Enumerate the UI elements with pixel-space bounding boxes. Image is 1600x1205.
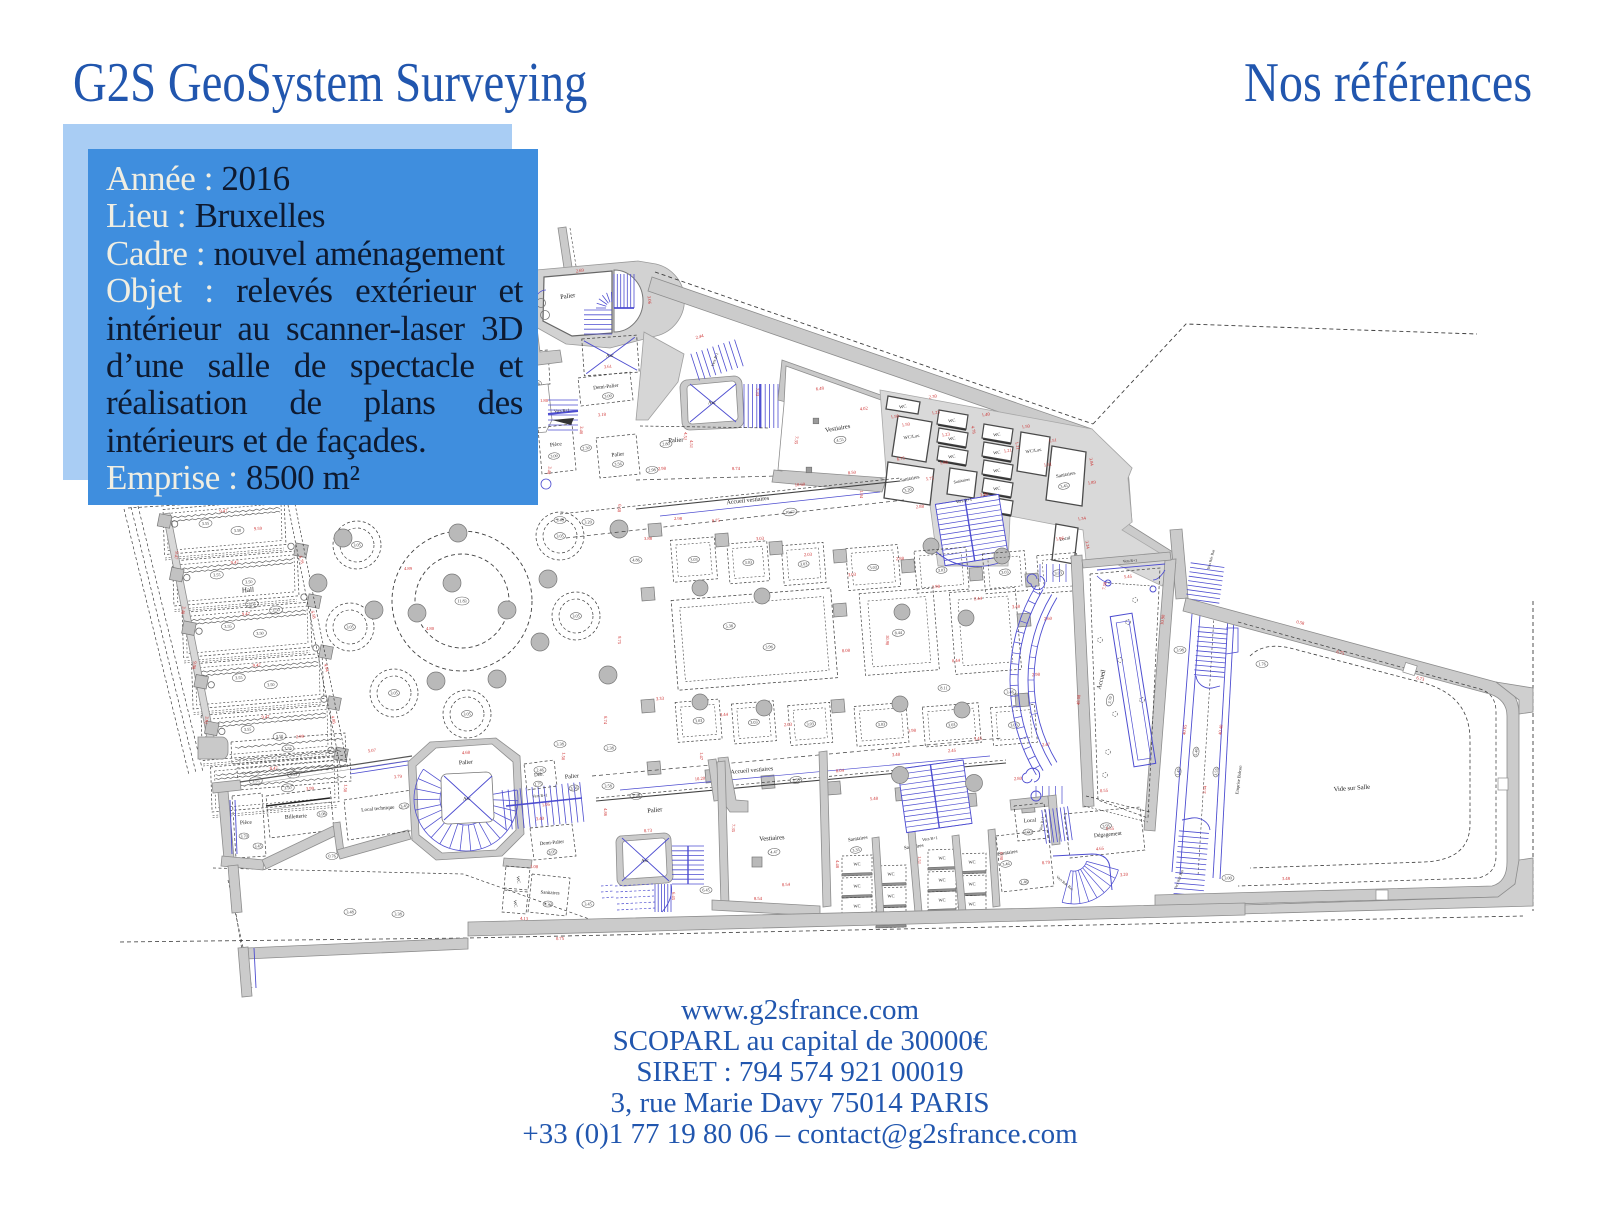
svg-text:6.78: 6.78 <box>298 555 305 565</box>
svg-text:Palier: Palier <box>565 773 579 780</box>
svg-text:1.94: 1.94 <box>859 490 864 499</box>
svg-text:3.03: 3.03 <box>948 722 956 728</box>
svg-text:3.03: 3.03 <box>1001 569 1009 575</box>
svg-text:2.03: 2.03 <box>804 552 813 558</box>
svg-text:1.50: 1.50 <box>343 784 349 793</box>
svg-text:2.99: 2.99 <box>296 734 305 739</box>
svg-text:Palier: Palier <box>611 451 625 458</box>
svg-text:3.35: 3.35 <box>852 847 860 853</box>
svg-text:3.45: 3.45 <box>584 901 591 906</box>
svg-text:0.75: 0.75 <box>556 936 565 941</box>
svg-text:3.03: 3.03 <box>695 718 703 724</box>
svg-text:7.33: 7.33 <box>755 388 760 397</box>
svg-text:2.45: 2.45 <box>948 748 957 754</box>
svg-text:Sanitaires: Sanitaires <box>848 836 868 844</box>
svg-text:2.30: 2.30 <box>582 445 590 451</box>
svg-text:3.48: 3.48 <box>1282 876 1291 881</box>
svg-text:5.07: 5.07 <box>368 748 377 754</box>
svg-text:3.55: 3.55 <box>244 726 252 731</box>
svg-text:2.80: 2.80 <box>1014 776 1023 782</box>
svg-text:3.38: 3.38 <box>632 793 639 798</box>
svg-text:3.44: 3.44 <box>720 712 729 718</box>
svg-text:3.38: 3.38 <box>394 911 401 916</box>
svg-text:WC: WC <box>968 859 975 864</box>
svg-text:3.03: 3.03 <box>744 559 752 565</box>
svg-text:0.44: 0.44 <box>952 658 961 664</box>
svg-text:9.47: 9.47 <box>261 714 270 720</box>
svg-text:3.55: 3.55 <box>202 521 210 526</box>
svg-text:3.46: 3.46 <box>1006 689 1013 694</box>
svg-text:3.40: 3.40 <box>579 426 585 435</box>
svg-text:3.88: 3.88 <box>644 536 653 541</box>
svg-text:3.48: 3.48 <box>346 909 353 914</box>
svg-text:3.55: 3.55 <box>235 675 243 680</box>
svg-text:8.79: 8.79 <box>1042 860 1051 866</box>
svg-text:Vers R+1: Vers R+1 <box>922 835 938 842</box>
svg-text:WC: WC <box>968 901 975 906</box>
svg-text:WC: WC <box>512 900 518 908</box>
svg-text:Local: Local <box>1024 818 1037 825</box>
svg-text:3.50: 3.50 <box>267 682 275 687</box>
svg-text:WC: WC <box>853 883 860 888</box>
svg-text:2.60: 2.60 <box>1044 616 1053 622</box>
svg-text:4.86: 4.86 <box>632 557 639 562</box>
svg-text:Emprise Balcon: Emprise Balcon <box>1234 764 1243 794</box>
svg-text:Accueil: Accueil <box>1096 669 1108 690</box>
svg-text:Demi-Palier: Demi-Palier <box>593 383 619 392</box>
svg-text:Dégagement: Dégagement <box>1094 831 1123 839</box>
svg-text:3.55: 3.55 <box>248 601 256 606</box>
svg-text:3.05: 3.05 <box>548 849 556 855</box>
svg-text:2.38: 2.38 <box>606 745 613 750</box>
svg-text:6.58: 6.58 <box>310 610 317 620</box>
svg-text:Palier: Palier <box>668 437 684 445</box>
svg-text:1.75: 1.75 <box>534 781 542 787</box>
svg-text:3.50: 3.50 <box>234 528 242 533</box>
svg-text:3.00: 3.00 <box>1224 875 1231 880</box>
svg-text:WC: WC <box>887 871 894 876</box>
svg-text:4.65: 4.65 <box>1096 846 1105 852</box>
svg-text:1.45: 1.45 <box>1175 768 1181 776</box>
svg-text:WC: WC <box>853 861 860 866</box>
svg-text:Pièce: Pièce <box>240 820 253 826</box>
svg-text:3.33: 3.33 <box>656 696 665 702</box>
svg-text:3.05: 3.05 <box>353 542 360 547</box>
svg-text:40.65: 40.65 <box>1181 724 1187 736</box>
svg-text:10.20: 10.20 <box>694 776 705 782</box>
svg-text:2.98: 2.98 <box>1032 672 1041 678</box>
svg-text:3.05: 3.05 <box>556 533 563 538</box>
svg-text:4.86: 4.86 <box>330 715 337 725</box>
svg-text:7.35: 7.35 <box>794 436 800 445</box>
svg-text:3.35: 3.35 <box>792 777 800 783</box>
svg-text:3.00: 3.00 <box>550 453 558 459</box>
svg-text:3.03: 3.03 <box>1054 570 1062 576</box>
svg-text:2.03: 2.03 <box>784 722 793 728</box>
svg-text:3.03: 3.03 <box>869 565 877 571</box>
svg-text:4.89: 4.89 <box>404 566 413 571</box>
svg-text:0.58: 0.58 <box>1296 619 1306 626</box>
svg-text:3.45: 3.45 <box>254 843 261 848</box>
svg-text:3.20: 3.20 <box>1120 872 1129 878</box>
svg-text:2.46: 2.46 <box>536 767 543 772</box>
svg-text:9.47: 9.47 <box>219 508 228 514</box>
svg-text:Asc: Asc <box>641 859 650 864</box>
svg-text:10.62: 10.62 <box>785 509 795 515</box>
svg-text:Asc: Asc <box>708 401 717 407</box>
svg-text:3.20: 3.20 <box>584 519 591 524</box>
svg-text:4.80: 4.80 <box>426 626 435 631</box>
svg-text:1.51: 1.51 <box>917 856 922 865</box>
svg-text:3.98: 3.98 <box>1176 647 1183 652</box>
svg-text:5.45: 5.45 <box>1124 574 1133 580</box>
svg-text:3.03: 3.03 <box>756 536 765 542</box>
svg-text:3.55: 3.55 <box>213 572 221 577</box>
svg-text:Palier: Palier <box>459 760 473 767</box>
svg-text:3.05: 3.05 <box>390 690 397 695</box>
svg-text:Asc: Asc <box>463 797 472 802</box>
svg-text:1.08: 1.08 <box>530 864 539 869</box>
svg-text:4.48: 4.48 <box>835 860 840 869</box>
svg-text:WC: WC <box>968 881 975 886</box>
svg-text:Accueil vestiaires: Accueil vestiaires <box>730 766 774 776</box>
svg-text:4.94: 4.94 <box>323 663 330 673</box>
svg-text:Vers R-1: Vers R-1 <box>710 352 720 367</box>
svg-text:Vestiaires: Vestiaires <box>759 834 785 843</box>
svg-text:3.06: 3.06 <box>647 296 653 305</box>
svg-text:8.44: 8.44 <box>894 630 903 636</box>
svg-text:Pièce: Pièce <box>550 441 563 448</box>
svg-text:2.98: 2.98 <box>658 466 667 472</box>
svg-text:2.88: 2.88 <box>896 556 905 562</box>
svg-text:WC: WC <box>515 876 521 884</box>
svg-text:3.54: 3.54 <box>1202 785 1208 794</box>
svg-text:2.30: 2.30 <box>928 393 937 399</box>
svg-text:Billetterie: Billetterie <box>285 813 308 821</box>
svg-text:3.38: 3.38 <box>556 741 563 746</box>
svg-text:Asc: Asc <box>606 354 615 360</box>
svg-text:3.45: 3.45 <box>974 736 983 742</box>
svg-text:10.60: 10.60 <box>794 481 806 487</box>
svg-text:3.50: 3.50 <box>256 630 264 635</box>
svg-text:3.79: 3.79 <box>1107 696 1114 704</box>
svg-text:8.74: 8.74 <box>732 466 741 471</box>
svg-text:3.45: 3.45 <box>400 803 408 809</box>
svg-text:0.55: 0.55 <box>1100 788 1109 793</box>
svg-text:3.70: 3.70 <box>240 833 247 838</box>
svg-text:Demi-Palier: Demi-Palier <box>540 840 565 847</box>
svg-text:3.56: 3.56 <box>614 461 622 467</box>
svg-text:2.80: 2.80 <box>662 441 670 446</box>
svg-text:Vide sur Salle: Vide sur Salle <box>1333 784 1370 794</box>
svg-text:0.90: 0.90 <box>999 852 1004 861</box>
svg-text:1.80: 1.80 <box>540 398 549 403</box>
svg-text:1.47: 1.47 <box>699 752 704 761</box>
svg-text:8.54: 8.54 <box>754 896 763 901</box>
svg-text:8.08: 8.08 <box>842 648 851 654</box>
svg-text:8.11: 8.11 <box>940 685 947 690</box>
svg-text:1.46: 1.46 <box>1020 879 1028 884</box>
svg-text:4.51: 4.51 <box>689 440 694 449</box>
svg-text:3.03: 3.03 <box>848 572 857 578</box>
svg-text:8.73: 8.73 <box>644 828 653 834</box>
svg-text:3.55: 3.55 <box>1213 768 1219 776</box>
svg-text:10.98: 10.98 <box>885 635 890 646</box>
svg-text:2.98: 2.98 <box>648 467 656 472</box>
svg-text:9.47: 9.47 <box>231 560 240 566</box>
svg-text:Local technique: Local technique <box>361 805 395 814</box>
svg-text:8.50: 8.50 <box>848 470 857 476</box>
svg-text:3.55: 3.55 <box>284 746 292 751</box>
svg-text:2.47: 2.47 <box>1042 742 1051 748</box>
svg-text:9.59: 9.59 <box>254 526 263 532</box>
svg-text:9.47: 9.47 <box>242 611 251 617</box>
svg-text:WC: WC <box>887 893 894 898</box>
svg-text:5.38: 5.38 <box>725 623 733 629</box>
svg-text:5.48: 5.48 <box>870 796 879 802</box>
svg-text:3.03: 3.03 <box>938 567 946 573</box>
svg-text:Vers Rdc Bas: Vers Rdc Bas <box>1206 549 1215 570</box>
svg-text:2.44: 2.44 <box>974 596 983 602</box>
svg-text:8.74: 8.74 <box>603 716 608 725</box>
svg-text:3.18: 3.18 <box>598 412 607 418</box>
svg-text:3.48: 3.48 <box>556 517 563 522</box>
svg-text:3.93: 3.93 <box>1024 829 1031 834</box>
svg-text:2.88: 2.88 <box>916 504 925 510</box>
svg-text:3.55: 3.55 <box>224 623 232 628</box>
svg-text:8.04: 8.04 <box>836 768 845 774</box>
svg-text:0.58: 0.58 <box>617 504 623 513</box>
svg-text:1.50: 1.50 <box>561 752 567 761</box>
svg-text:3.05: 3.05 <box>463 711 470 716</box>
svg-text:3.79: 3.79 <box>394 774 403 780</box>
svg-text:3.03: 3.03 <box>878 721 886 727</box>
svg-text:3.50: 3.50 <box>272 607 280 612</box>
svg-text:2.44: 2.44 <box>695 333 705 340</box>
svg-text:6.45: 6.45 <box>702 887 709 892</box>
svg-text:3.48: 3.48 <box>892 752 901 758</box>
svg-text:7.58: 7.58 <box>1101 581 1107 590</box>
svg-text:1.76: 1.76 <box>1258 661 1265 666</box>
svg-text:3.03: 3.03 <box>806 721 814 727</box>
svg-text:1.05: 1.05 <box>542 802 551 808</box>
svg-text:6.45: 6.45 <box>671 892 676 901</box>
svg-text:3.05: 3.05 <box>572 613 579 618</box>
svg-text:3.00: 3.00 <box>604 393 612 399</box>
svg-text:3.96: 3.96 <box>765 644 773 650</box>
svg-text:WC: WC <box>938 855 945 860</box>
svg-text:8.54: 8.54 <box>782 882 791 888</box>
svg-text:3.50: 3.50 <box>245 579 253 584</box>
svg-text:4.86: 4.86 <box>603 808 608 817</box>
svg-text:11.83: 11.83 <box>457 598 466 603</box>
svg-text:3.40: 3.40 <box>546 466 553 476</box>
svg-text:3.58: 3.58 <box>604 783 611 788</box>
svg-text:3.56: 3.56 <box>570 785 578 791</box>
svg-text:WC: WC <box>938 897 945 902</box>
svg-text:Vers Rdc Bas: Vers Rdc Bas <box>1174 869 1185 890</box>
svg-text:1.98: 1.98 <box>908 728 917 734</box>
svg-text:3.46: 3.46 <box>1002 861 1010 867</box>
svg-text:3.05: 3.05 <box>346 624 353 629</box>
svg-text:9.75: 9.75 <box>617 636 622 645</box>
svg-text:2.98: 2.98 <box>674 516 683 521</box>
svg-text:WC: WC <box>938 877 945 882</box>
svg-text:Vers Rdc Bas: Vers Rdc Bas <box>1056 875 1075 892</box>
svg-text:1.98: 1.98 <box>932 584 941 590</box>
svg-text:3.03: 3.03 <box>1010 722 1018 728</box>
svg-text:7.35: 7.35 <box>731 824 736 833</box>
svg-text:WC: WC <box>853 903 860 908</box>
svg-text:Sanitaires: Sanitaires <box>540 891 559 897</box>
svg-text:3.40: 3.40 <box>536 816 545 822</box>
svg-text:3.03: 3.03 <box>750 719 758 725</box>
svg-text:9.75: 9.75 <box>712 518 721 524</box>
svg-text:3.08: 3.08 <box>318 811 326 816</box>
svg-text:40.40: 40.40 <box>1217 724 1223 736</box>
svg-text:3.03: 3.03 <box>800 561 808 567</box>
svg-text:0.76: 0.76 <box>328 853 335 858</box>
svg-text:Palier: Palier <box>647 806 664 815</box>
svg-text:6.75: 6.75 <box>1336 649 1346 656</box>
svg-text:4.51: 4.51 <box>683 432 689 441</box>
svg-text:3.93: 3.93 <box>1102 823 1110 829</box>
svg-text:9.47: 9.47 <box>253 662 262 668</box>
svg-text:Hall: Hall <box>242 586 255 595</box>
svg-text:3.03: 3.03 <box>690 557 698 563</box>
svg-text:4.47: 4.47 <box>770 849 778 854</box>
svg-text:3.61: 3.61 <box>604 364 613 370</box>
svg-text:48.08: 48.08 <box>1076 694 1082 705</box>
svg-text:4.68: 4.68 <box>462 750 471 756</box>
svg-text:5.46: 5.46 <box>1193 748 1199 756</box>
svg-text:4.33: 4.33 <box>544 901 551 906</box>
svg-text:3.48: 3.48 <box>1012 604 1021 610</box>
